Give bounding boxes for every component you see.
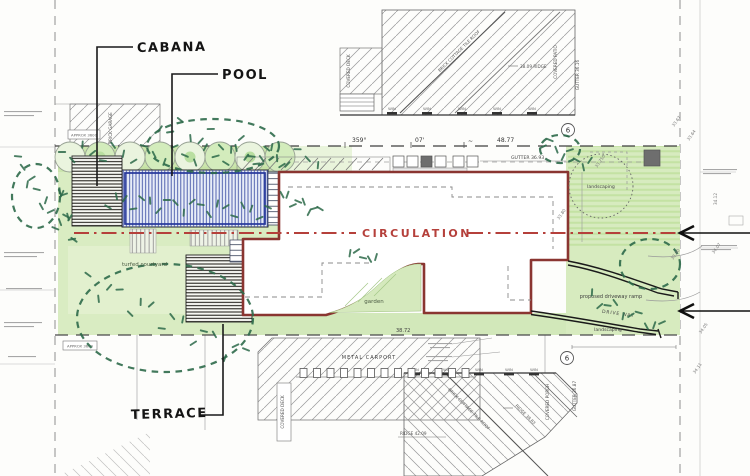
covered-patio: COVERED PATIO bbox=[553, 44, 558, 78]
landscaping-circle-text: landscaping bbox=[587, 184, 615, 190]
label-pool: POOL bbox=[222, 68, 268, 83]
leaf-dash bbox=[190, 135, 191, 141]
service-structure bbox=[644, 150, 660, 166]
fence-post bbox=[449, 369, 456, 378]
approx-dim-top: APPROX 3600 bbox=[71, 133, 98, 138]
leaf-dash bbox=[623, 313, 624, 319]
leaf-dash bbox=[182, 316, 183, 322]
fence-post bbox=[368, 369, 375, 378]
window-label: WIN bbox=[493, 106, 501, 111]
window-tick bbox=[529, 373, 539, 375]
leaf-dash bbox=[217, 200, 218, 206]
leaf-dash bbox=[604, 305, 610, 306]
window-label: WIN bbox=[530, 367, 538, 372]
window-label: WIN bbox=[475, 367, 483, 372]
marker-six-top: 6 bbox=[566, 127, 571, 135]
bearing-deg: 359° bbox=[352, 137, 366, 144]
leaf-dash bbox=[100, 160, 106, 161]
circulation-text: CIRCULATION bbox=[362, 227, 472, 240]
window-tick bbox=[457, 112, 467, 114]
marker-six-bottom: 6 bbox=[565, 355, 570, 363]
ridge-south-b: RIDGE 42.09 bbox=[400, 431, 427, 436]
leaf-dash bbox=[130, 208, 136, 209]
driveway-ramp-text: proposed driveway ramp bbox=[580, 294, 642, 300]
carport-label: METAL CARPORT bbox=[342, 355, 396, 361]
fence-post bbox=[327, 369, 334, 378]
leaf-dash bbox=[318, 162, 319, 168]
fence-post bbox=[422, 369, 429, 378]
window-label: WIN bbox=[528, 106, 536, 111]
frontage-dim: 48.77 bbox=[497, 137, 514, 144]
leaf-dash bbox=[236, 145, 237, 151]
window-tick bbox=[387, 112, 397, 114]
window-tick bbox=[474, 373, 484, 375]
window-label: WIN bbox=[458, 106, 466, 111]
window-label: WIN bbox=[505, 367, 513, 372]
covered-porch: COVERED PORCH bbox=[545, 384, 550, 420]
window-tick bbox=[422, 112, 432, 114]
leaf-dash bbox=[248, 156, 254, 157]
garden-text: garden bbox=[364, 299, 384, 305]
leaf-dash bbox=[159, 328, 165, 329]
leaf-dash bbox=[198, 204, 204, 205]
fence-post bbox=[462, 369, 469, 378]
fence-post bbox=[300, 369, 307, 378]
site-plan-drawing: BRICK GARAGE APPROX 3600 COVERED DECK BR… bbox=[0, 0, 750, 476]
leaf-dash bbox=[15, 156, 21, 157]
tilde: ~ bbox=[468, 138, 473, 145]
fence-post bbox=[381, 369, 388, 378]
fence-post bbox=[354, 369, 361, 378]
window-tick bbox=[492, 112, 502, 114]
leaf-dash bbox=[27, 181, 28, 187]
spot-level: 34.12 bbox=[713, 193, 718, 205]
label-cabana: CABANA bbox=[137, 40, 207, 56]
covered-deck-south: COVERED DECK bbox=[280, 395, 285, 429]
window-label: WIN bbox=[423, 106, 431, 111]
window-label: WIN bbox=[388, 106, 396, 111]
neighbour-garage: BRICK GARAGE APPROX 3600 bbox=[55, 104, 160, 146]
leaf-dash bbox=[271, 144, 272, 150]
turfed-courtyard-text: turfed courtyard bbox=[122, 262, 167, 268]
window-tick bbox=[527, 112, 537, 114]
leaf-dash bbox=[116, 193, 117, 199]
window-tick bbox=[504, 373, 514, 375]
leaf-dash bbox=[123, 151, 124, 157]
fence-post bbox=[408, 369, 415, 378]
label-terrace: TERRACE bbox=[131, 406, 208, 423]
landscaping-strip-text: landscaping bbox=[594, 327, 622, 333]
ridge-north: 38.09 RIDGE bbox=[520, 64, 547, 69]
leaf-dash bbox=[350, 250, 351, 256]
leaf-dash bbox=[253, 163, 259, 164]
fence-post bbox=[314, 369, 321, 378]
leaf-dash bbox=[98, 296, 99, 302]
fence-post bbox=[341, 369, 348, 378]
bearing-min: 07' bbox=[415, 137, 425, 144]
proposed-building: garden bbox=[243, 172, 568, 315]
gutter-south: GUTTER 36.87 bbox=[572, 381, 577, 412]
covered-deck-north: COVERED DECK bbox=[346, 54, 351, 88]
garage-label: BRICK GARAGE bbox=[108, 112, 113, 144]
gutter-north: GUTTER 36.16 bbox=[575, 60, 580, 91]
fence-post bbox=[435, 369, 442, 378]
fence-post bbox=[395, 369, 402, 378]
gutter-dim: GUTTER 36.93 bbox=[511, 155, 544, 161]
rear-dim: 38.72 bbox=[396, 328, 410, 334]
